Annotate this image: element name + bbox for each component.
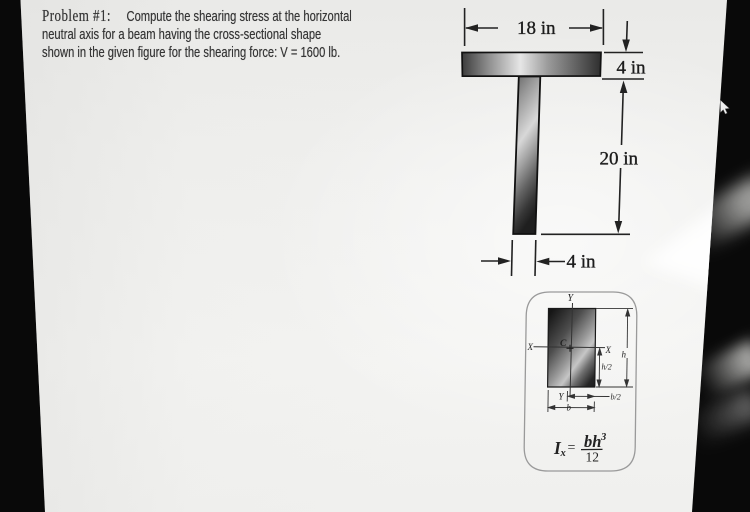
svg-text:18 in: 18 in [517,18,556,39]
svg-text:h: h [622,350,627,360]
svg-text:h/2: h/2 [602,363,612,372]
svg-text:x: x [560,448,566,459]
svg-text:X: X [605,345,612,355]
svg-text:b/2: b/2 [611,393,621,402]
svg-text:12: 12 [586,450,600,465]
svg-text:20 in: 20 in [600,149,639,170]
svg-text:4 in: 4 in [567,252,597,273]
svg-text:b: b [567,403,572,413]
svg-text:=: = [568,441,576,456]
svg-text:X: X [527,342,534,352]
svg-text:C: C [560,339,567,349]
svg-text:3: 3 [600,432,606,443]
svg-text:Y: Y [568,293,575,304]
svg-text:bh: bh [584,432,601,451]
svg-text:Y: Y [559,392,565,402]
svg-text:4 in: 4 in [617,58,647,79]
